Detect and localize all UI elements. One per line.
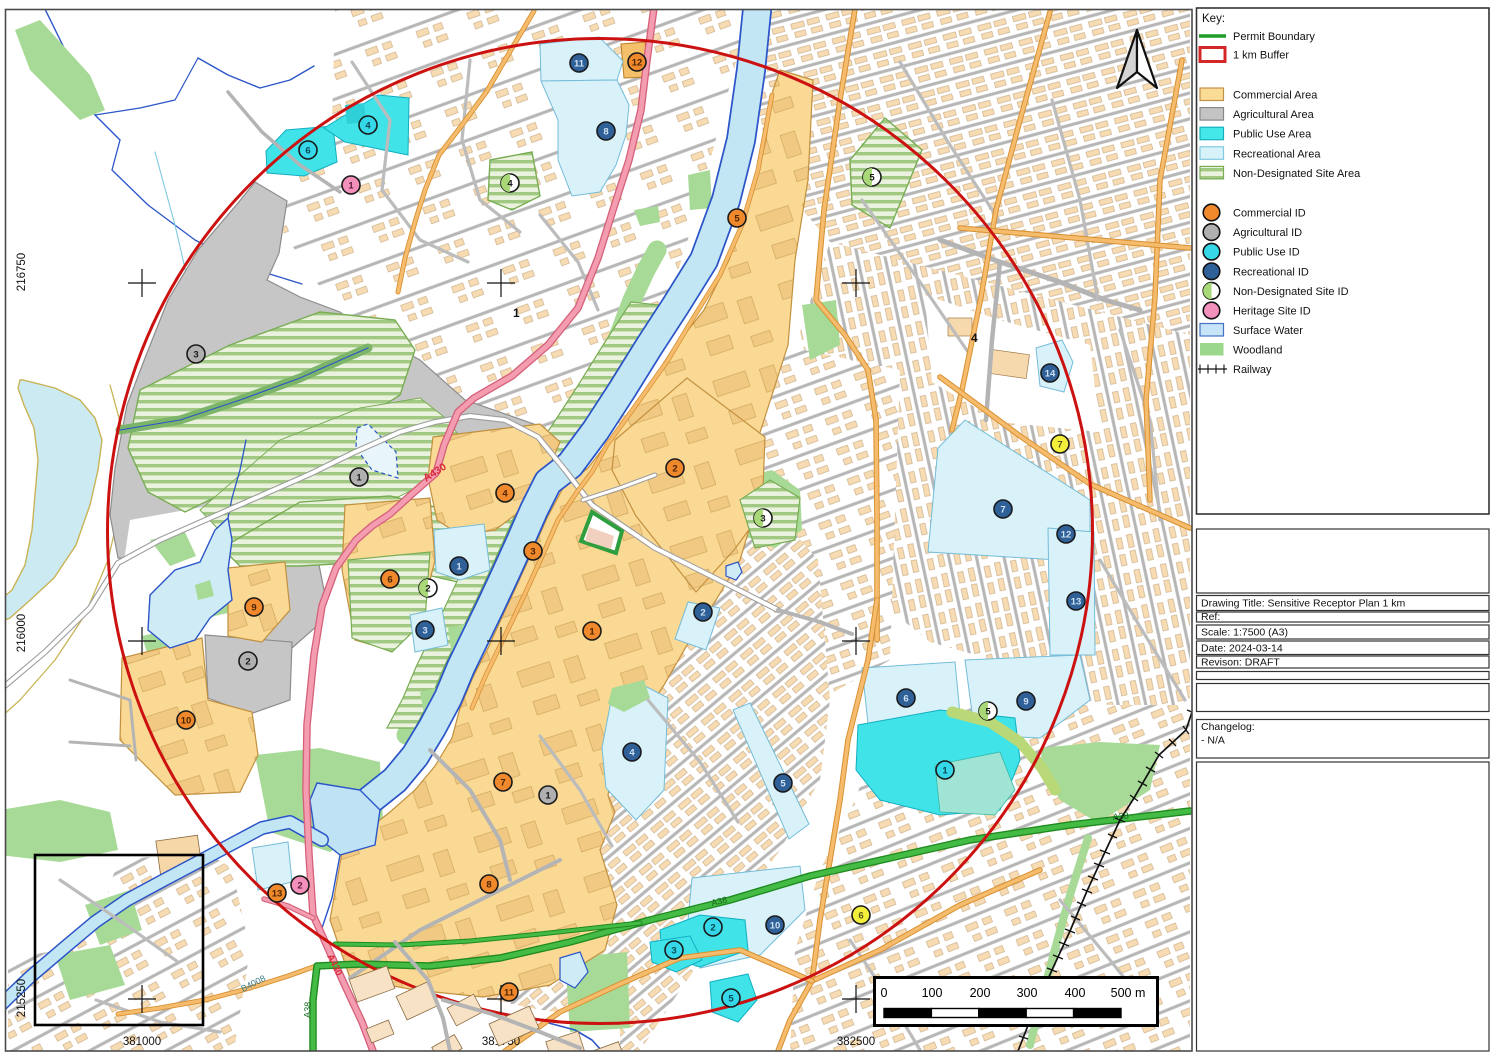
svg-text:3: 3 [530, 546, 535, 557]
svg-text:11: 11 [574, 58, 585, 69]
svg-text:9: 9 [1023, 696, 1028, 707]
svg-text:13: 13 [272, 888, 283, 899]
svg-text:Non-Designated Site ID: Non-Designated Site ID [1233, 286, 1349, 298]
svg-text:5: 5 [780, 778, 786, 789]
svg-text:Woodland: Woodland [1233, 345, 1282, 357]
svg-text:A38: A38 [302, 1002, 313, 1019]
svg-text:9: 9 [251, 602, 256, 613]
svg-text:6: 6 [305, 145, 310, 156]
svg-text:382500: 382500 [837, 1036, 875, 1048]
svg-text:5: 5 [985, 706, 991, 717]
svg-text:14: 14 [1045, 368, 1056, 379]
svg-text:1: 1 [348, 180, 354, 191]
svg-text:3: 3 [422, 625, 427, 636]
svg-text:1: 1 [589, 626, 595, 637]
svg-text:6: 6 [858, 910, 863, 921]
svg-text:Recreational ID: Recreational ID [1233, 266, 1309, 278]
svg-text:Date: 2024-03-14: Date: 2024-03-14 [1201, 643, 1283, 655]
svg-text:10: 10 [181, 715, 192, 726]
svg-text:1: 1 [513, 306, 520, 320]
svg-text:Commercial Area: Commercial Area [1233, 90, 1318, 102]
svg-text:Key:: Key: [1202, 13, 1225, 25]
svg-text:7: 7 [1057, 439, 1062, 450]
svg-text:11: 11 [504, 987, 515, 998]
svg-text:381000: 381000 [123, 1036, 161, 1048]
svg-text:5: 5 [728, 993, 734, 1004]
svg-text:1: 1 [942, 765, 948, 776]
svg-text:1: 1 [356, 472, 362, 483]
svg-text:5: 5 [869, 172, 875, 183]
svg-text:Commercial ID: Commercial ID [1233, 208, 1306, 220]
svg-text:4: 4 [629, 747, 635, 758]
svg-text:12: 12 [1061, 529, 1072, 540]
svg-text:- N/A: - N/A [1201, 735, 1225, 747]
svg-text:Recreational Area: Recreational Area [1233, 148, 1321, 160]
svg-text:1 km Buffer: 1 km Buffer [1233, 50, 1289, 62]
svg-text:216750: 216750 [16, 253, 28, 291]
svg-text:10: 10 [770, 920, 781, 931]
svg-text:8: 8 [603, 126, 608, 137]
svg-text:2: 2 [710, 922, 715, 933]
svg-text:Public Use ID: Public Use ID [1233, 247, 1300, 259]
svg-text:1: 1 [545, 790, 551, 801]
svg-text:Public Use Area: Public Use Area [1233, 129, 1312, 141]
svg-text:200: 200 [970, 986, 991, 1000]
svg-text:Railway: Railway [1233, 364, 1272, 376]
svg-text:Heritage Site ID: Heritage Site ID [1233, 306, 1311, 318]
svg-text:4: 4 [502, 488, 508, 499]
svg-text:7: 7 [1000, 504, 1005, 515]
svg-text:1: 1 [456, 561, 462, 572]
svg-text:Revison: DRAFT: Revison: DRAFT [1201, 657, 1280, 669]
svg-text:3: 3 [671, 945, 676, 956]
svg-text:0: 0 [881, 986, 888, 1000]
svg-text:Agricultural ID: Agricultural ID [1233, 227, 1302, 239]
svg-text:4: 4 [971, 331, 978, 345]
svg-text:Agricultural Area: Agricultural Area [1233, 109, 1315, 121]
svg-text:2: 2 [245, 656, 250, 667]
svg-text:13: 13 [1071, 596, 1082, 607]
svg-text:2: 2 [672, 463, 677, 474]
svg-text:Scale: 1:7500 (A3): Scale: 1:7500 (A3) [1201, 627, 1288, 639]
svg-text:4: 4 [365, 120, 371, 131]
svg-text:12: 12 [632, 57, 643, 68]
svg-text:216000: 216000 [16, 614, 28, 652]
svg-text:215250: 215250 [16, 979, 28, 1017]
svg-text:300: 300 [1017, 986, 1038, 1000]
svg-text:6: 6 [903, 693, 908, 704]
svg-text:7: 7 [500, 777, 505, 788]
svg-text:6: 6 [387, 574, 392, 585]
svg-text:3: 3 [760, 513, 765, 524]
svg-text:Ref:: Ref: [1201, 611, 1220, 623]
svg-text:Permit Boundary: Permit Boundary [1233, 31, 1315, 43]
svg-text:2: 2 [425, 583, 430, 594]
svg-text:Surface Water: Surface Water [1233, 325, 1303, 337]
svg-text:Non-Designated Site Area: Non-Designated Site Area [1233, 168, 1361, 180]
svg-text:2: 2 [297, 880, 302, 891]
svg-text:Drawing Title: Sensitive Recep: Drawing Title: Sensitive Receptor Plan 1… [1201, 598, 1406, 610]
svg-text:2: 2 [700, 607, 705, 618]
svg-text:500 m: 500 m [1111, 986, 1146, 1000]
svg-text:3: 3 [193, 349, 198, 360]
svg-text:A38: A38 [1112, 810, 1129, 822]
svg-text:4: 4 [507, 178, 513, 189]
svg-text:400: 400 [1065, 986, 1086, 1000]
svg-text:8: 8 [486, 879, 491, 890]
svg-text:100: 100 [922, 986, 943, 1000]
svg-text:5: 5 [734, 213, 740, 224]
svg-text:Changelog:: Changelog: [1201, 721, 1255, 733]
